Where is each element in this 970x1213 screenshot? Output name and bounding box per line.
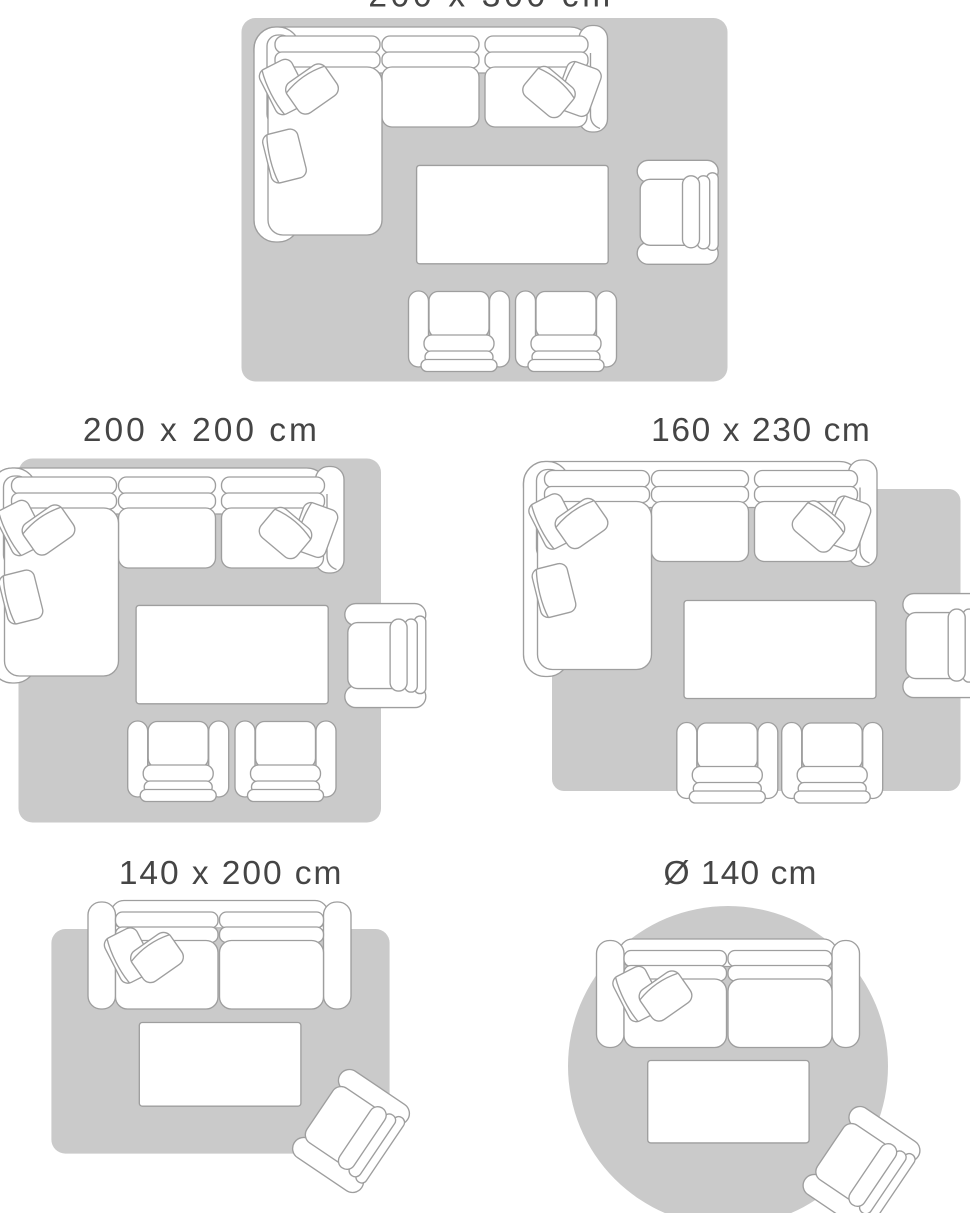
svg-text:Ø 140 cm: Ø 140 cm [663,855,817,892]
svg-text:200 x 200 cm: 200 x 200 cm [83,412,320,449]
svg-text:140 x 200 cm: 140 x 200 cm [119,855,344,892]
svg-text:200 x 300 cm: 200 x 300 cm [368,0,614,14]
svg-text:160 x 230 cm: 160 x 230 cm [651,412,871,449]
